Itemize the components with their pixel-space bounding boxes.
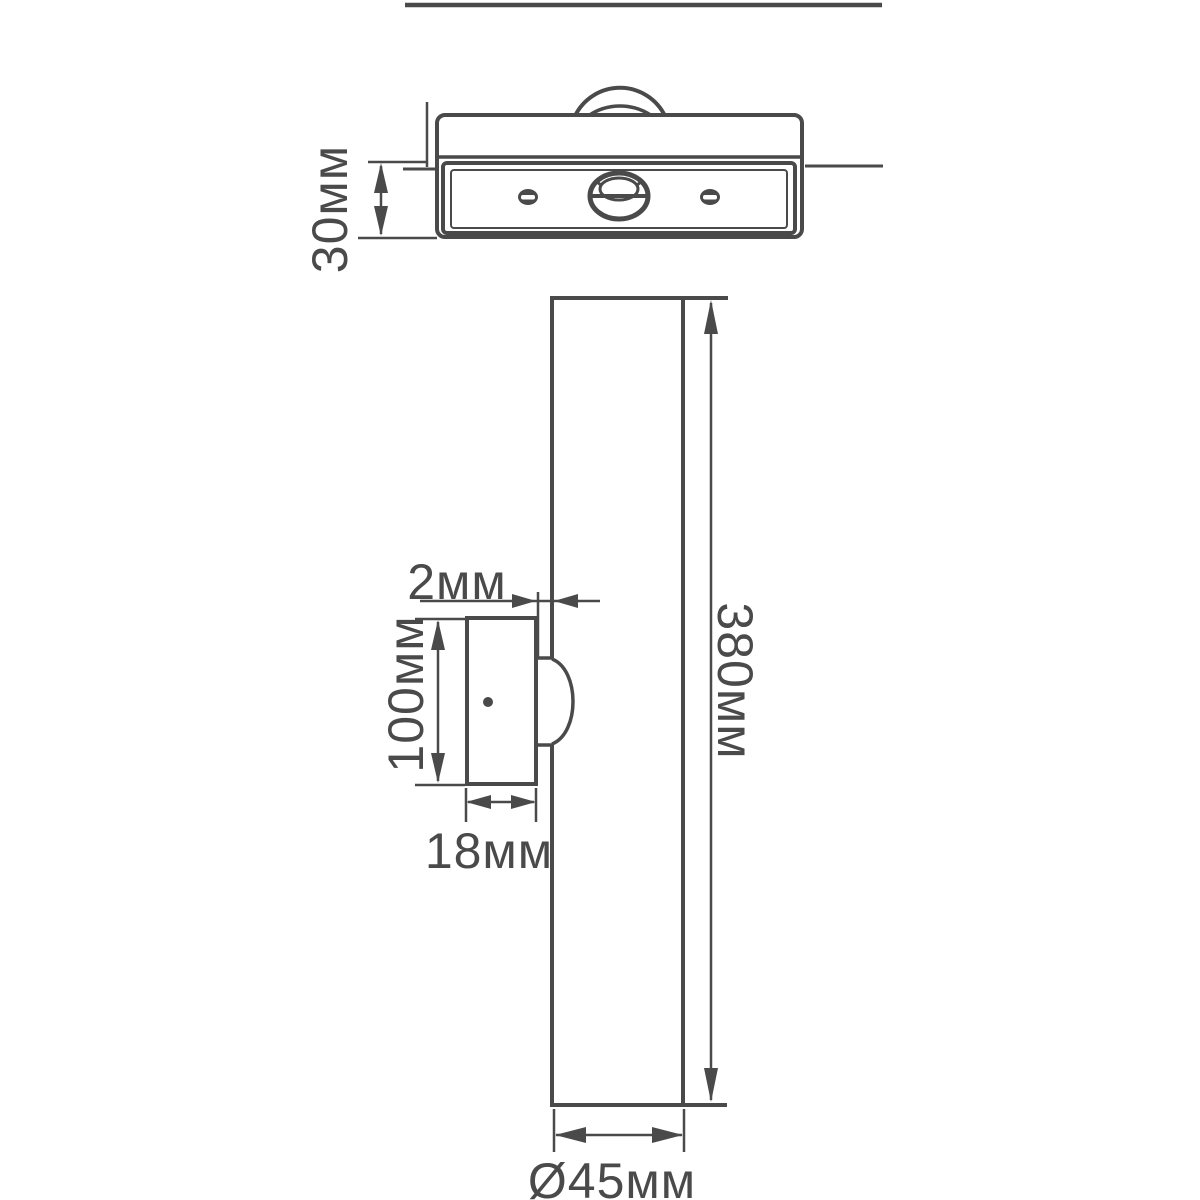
screw-hole-right <box>700 189 720 205</box>
dim-label-45mm: Ø45мм <box>528 1152 696 1200</box>
screw-hole-left <box>518 189 538 205</box>
arrowhead-up <box>374 163 388 193</box>
lens <box>590 173 648 219</box>
dim-45mm <box>554 1109 684 1152</box>
dim-18mm <box>466 788 536 822</box>
arrowhead-down <box>374 206 388 236</box>
tube-outer-arc <box>575 88 665 116</box>
drawing-linework <box>0 0 1200 1200</box>
dim-label-2mm: 2мм <box>407 553 507 611</box>
arrowhead-right <box>512 594 536 608</box>
wall-bracket <box>467 618 573 784</box>
drawing-canvas: 30мм 2мм 100мм 18мм 380мм Ø45мм <box>0 0 1200 1200</box>
side-view <box>415 296 728 1152</box>
arrowhead-left <box>466 795 491 809</box>
bracket-screw-dot <box>483 697 493 707</box>
bracket-boss-arc <box>552 659 573 744</box>
arrowhead-left <box>554 594 578 608</box>
arrowhead-left <box>555 1127 586 1143</box>
arrowhead-down <box>704 1068 718 1102</box>
arrowhead-up <box>704 300 718 334</box>
arrowhead-right <box>652 1127 683 1143</box>
arrowhead-right <box>511 795 536 809</box>
lamp-tube <box>552 296 728 1107</box>
dim-label-380mm: 380мм <box>706 602 764 759</box>
dim-30mm <box>358 162 437 238</box>
dim-label-100mm: 100мм <box>377 615 435 772</box>
top-view <box>358 5 883 238</box>
dim-label-18mm: 18мм <box>425 822 553 880</box>
dim-label-30mm: 30мм <box>301 145 359 273</box>
